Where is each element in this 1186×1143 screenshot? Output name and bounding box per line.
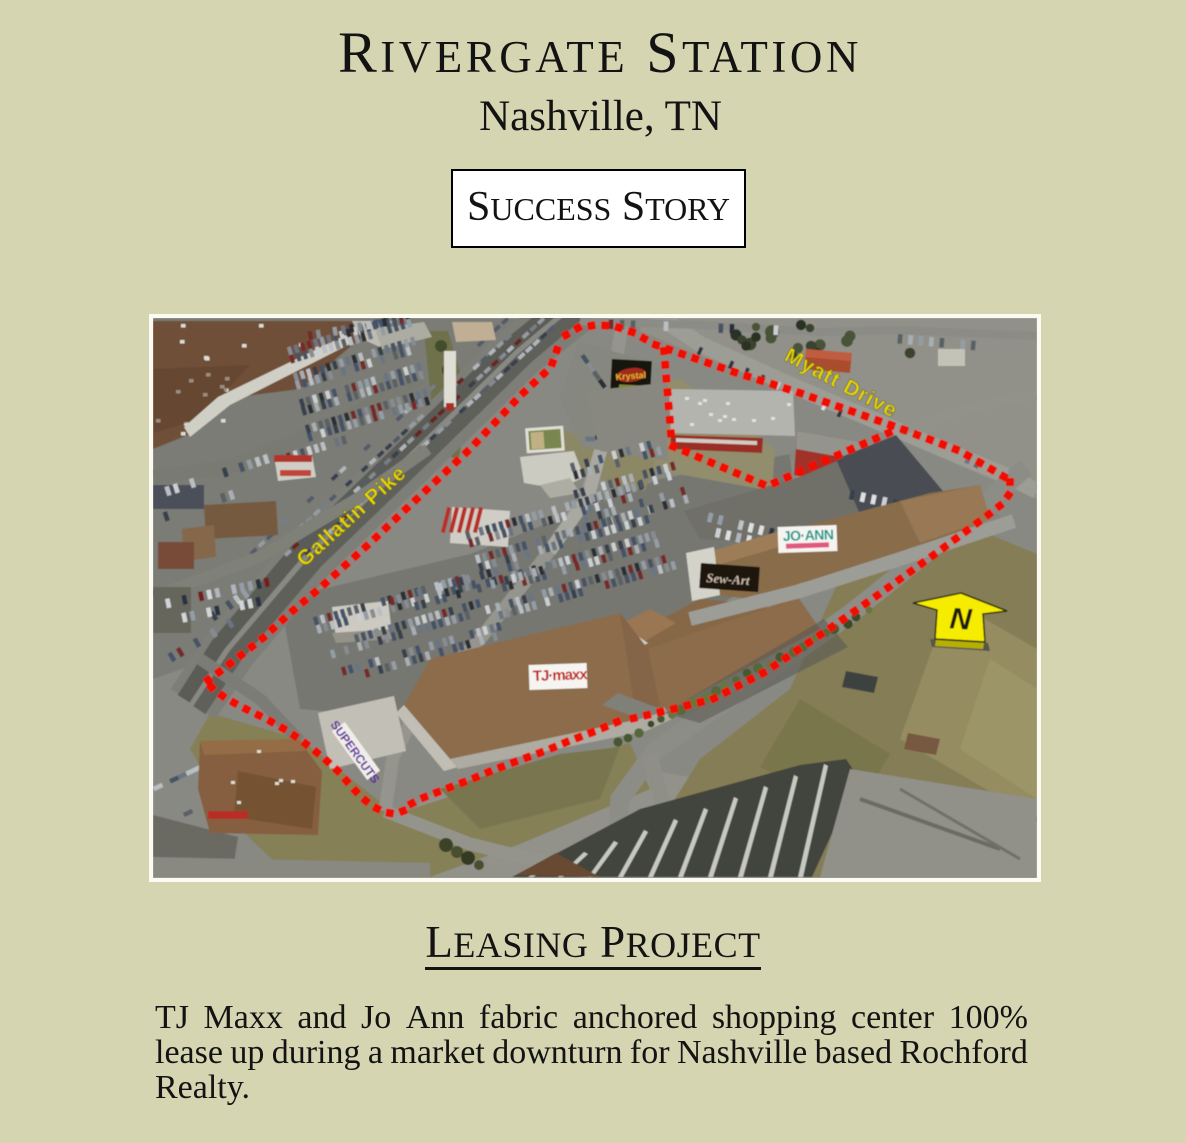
svg-text:N: N bbox=[949, 602, 974, 637]
svg-text:TJ·maxx: TJ·maxx bbox=[533, 666, 589, 685]
svg-text:Sew-Art: Sew-Art bbox=[706, 570, 751, 588]
svg-text:JO·ANN: JO·ANN bbox=[783, 526, 835, 544]
